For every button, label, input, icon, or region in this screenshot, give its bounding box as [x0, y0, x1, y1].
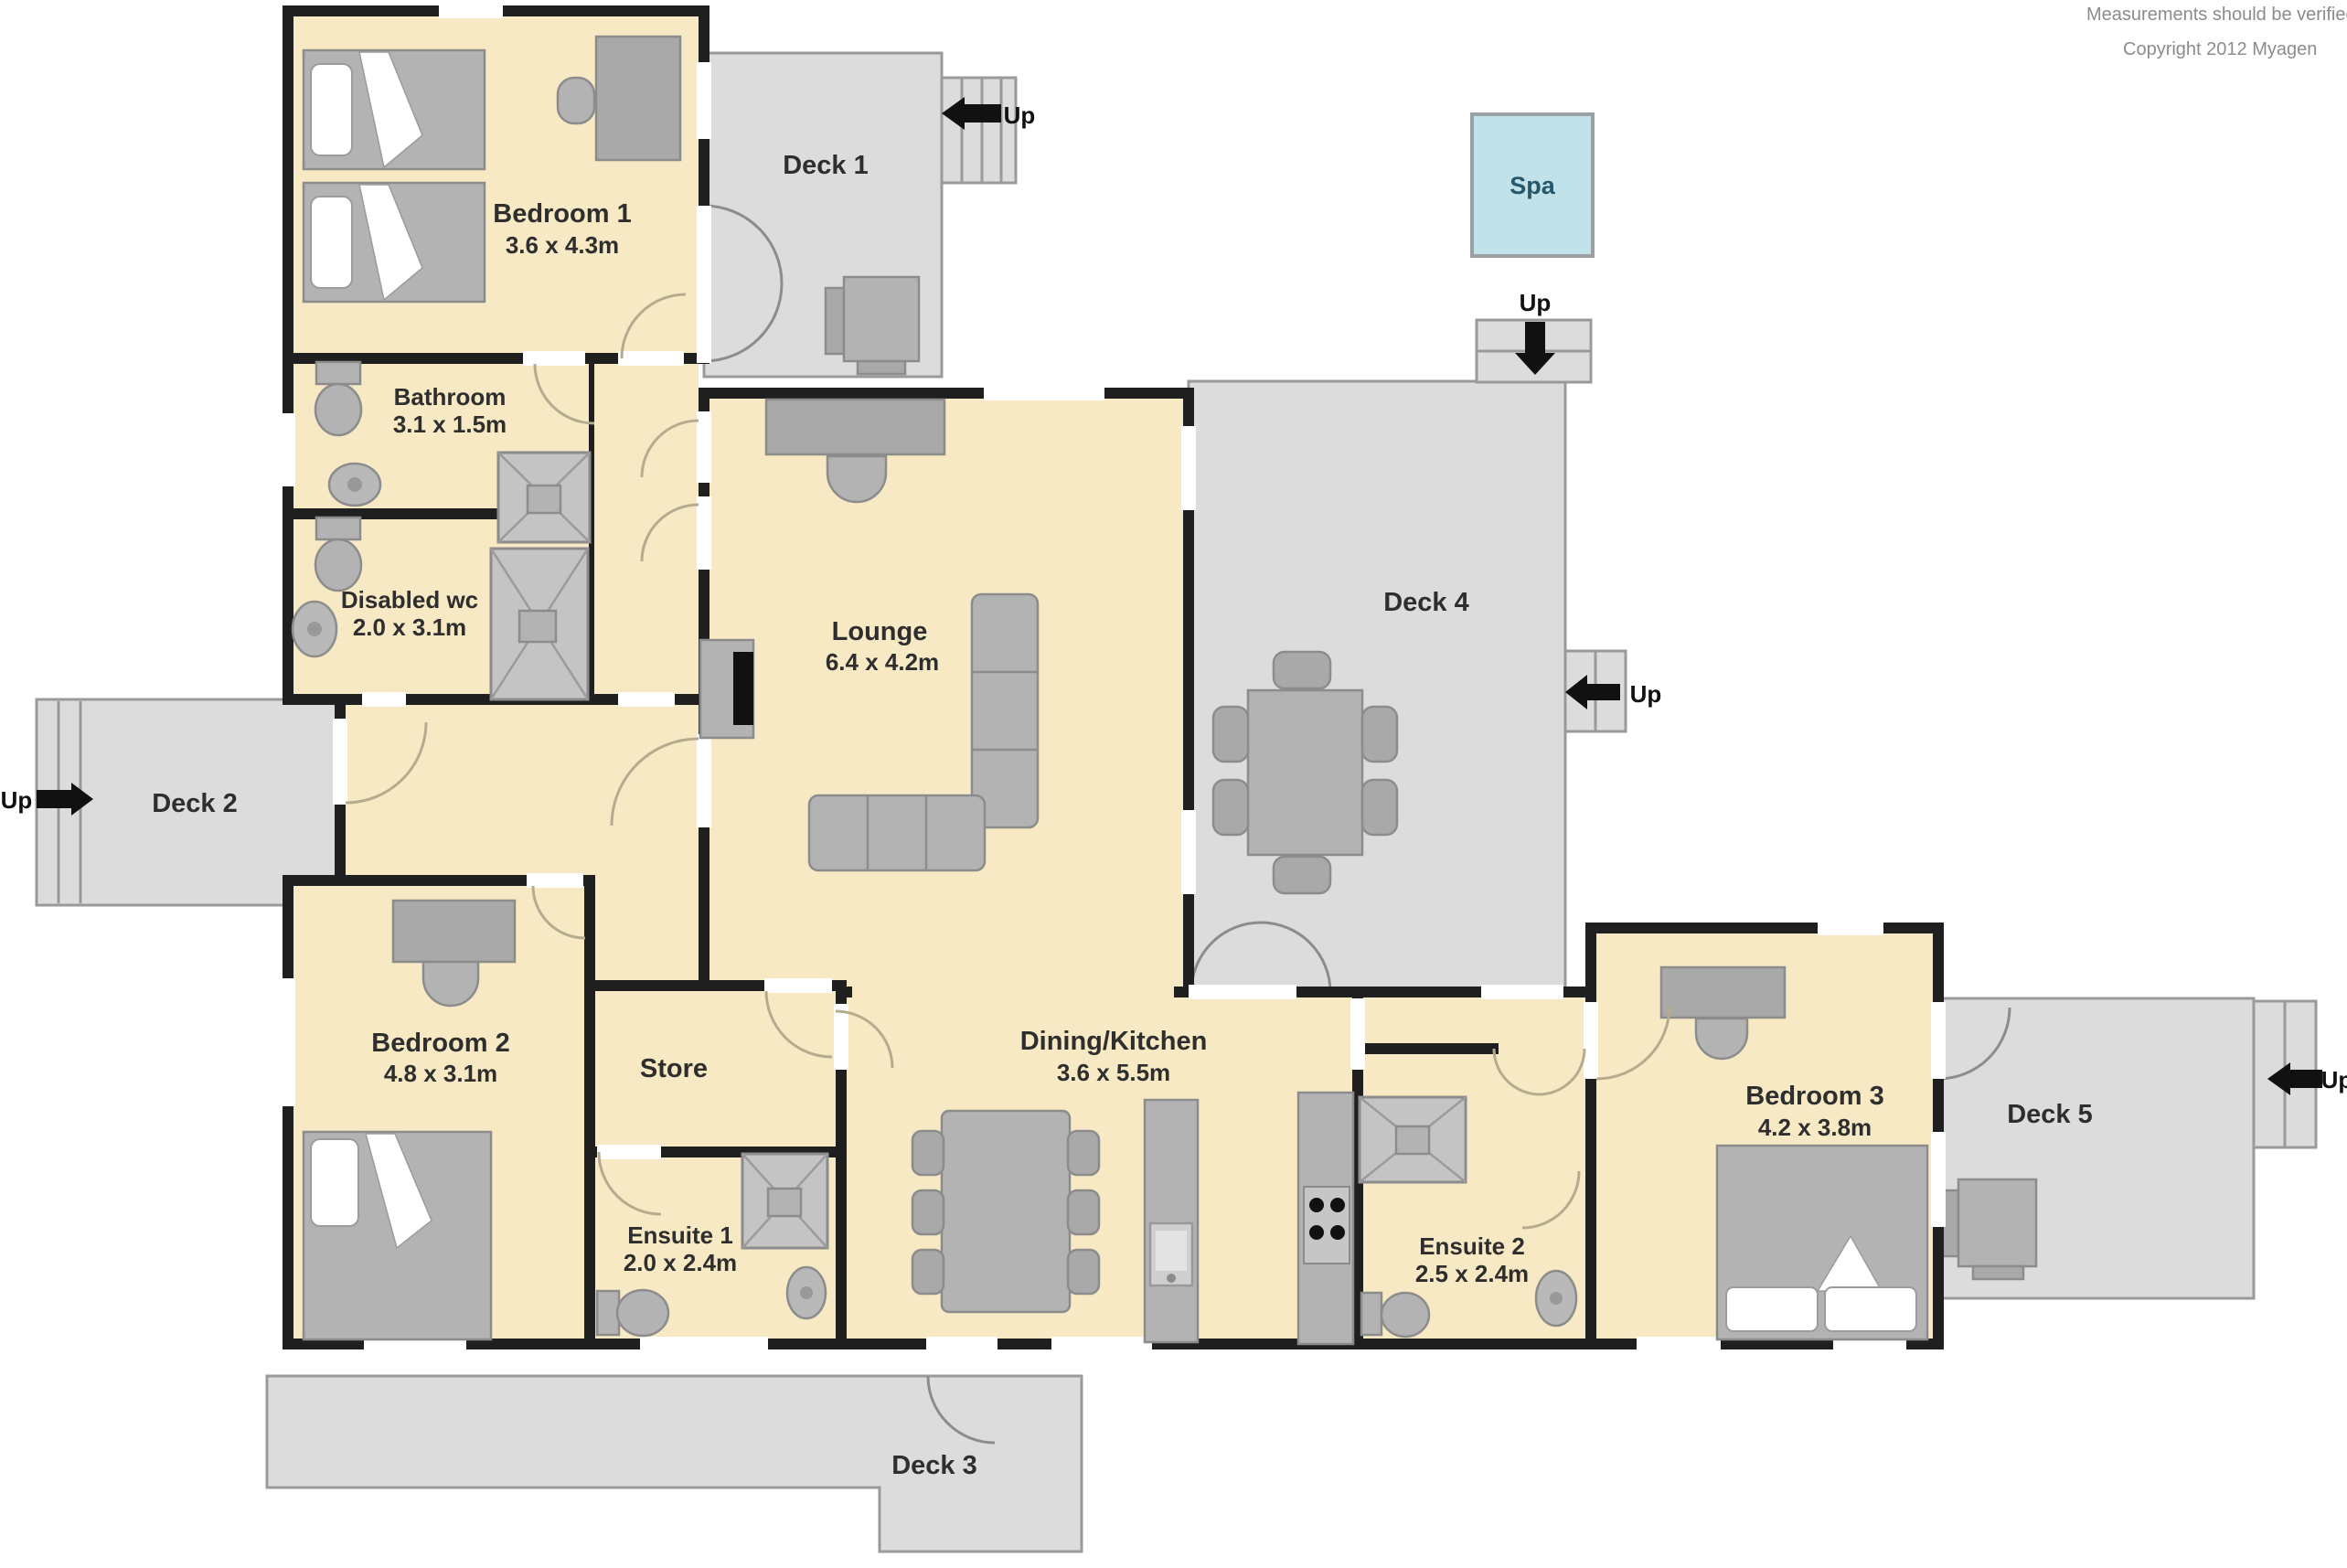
- window-gap: [1181, 810, 1196, 894]
- door-gap: [618, 351, 684, 366]
- spa: Spa: [1472, 114, 1593, 256]
- bed-single-2: [304, 183, 485, 302]
- door-gap: [764, 978, 832, 993]
- label-bedroom2-name: Bedroom 2: [371, 1029, 509, 1058]
- label-bedroom3-name: Bedroom 3: [1745, 1082, 1883, 1111]
- up-label-deck4-right: Up: [1630, 680, 1662, 708]
- ensuite1-toilet: [597, 1290, 668, 1336]
- bed-single-1: [304, 50, 485, 169]
- room-store: [590, 986, 841, 1152]
- shower-1: [498, 453, 590, 542]
- label-ensuite2-dims: 2.5 x 2.4m: [1415, 1260, 1529, 1287]
- note-line2: Copyright 2012 Myagen: [2123, 39, 2317, 59]
- door-gap: [697, 206, 711, 363]
- note-line1: Measurements should be verified b: [2086, 5, 2347, 25]
- bathroom-sink: [329, 464, 380, 506]
- label-store-name: Store: [640, 1054, 708, 1083]
- corridor: [594, 364, 699, 699]
- disabledwc-sink: [293, 602, 336, 656]
- label-bathroom-dims: 3.1 x 1.5m: [393, 411, 507, 438]
- bathroom-toilet: [315, 362, 361, 435]
- floor-plan: Spa: [0, 0, 2347, 1568]
- label-ensuite2-name: Ensuite 2: [1419, 1232, 1525, 1260]
- deck-1: [704, 53, 1016, 377]
- door-gap: [527, 873, 583, 888]
- ensuite1-sink: [787, 1267, 826, 1318]
- plan-notes: Measurements should be verified b Copyri…: [2086, 5, 2347, 59]
- window-gap: [439, 4, 503, 18]
- window-gap: [1931, 1132, 1946, 1227]
- bedroom2-bed: [304, 1132, 491, 1339]
- window-gap: [281, 978, 295, 1106]
- wall-ensuite2-vestibule: [1352, 1043, 1499, 1054]
- bedroom3-bed: [1717, 1146, 1927, 1339]
- label-disabledwc-name: Disabled wc: [341, 586, 478, 613]
- door-gap: [1931, 1002, 1946, 1079]
- shower-2: [491, 549, 588, 699]
- window-gap: [281, 413, 295, 486]
- label-deck1: Deck 1: [783, 151, 869, 180]
- door-gap: [362, 692, 406, 707]
- up-label-deck1: Up: [1004, 101, 1036, 129]
- label-ensuite1-dims: 2.0 x 2.4m: [624, 1249, 737, 1276]
- label-ensuite1-name: Ensuite 1: [627, 1221, 733, 1249]
- door-gap: [1584, 1002, 1598, 1079]
- window-gap: [1181, 426, 1196, 510]
- lounge-sofa-vertical: [972, 594, 1038, 827]
- label-lounge-name: Lounge: [832, 617, 928, 646]
- label-deck5: Deck 5: [2007, 1100, 2093, 1129]
- label-bedroom2-dims: 4.8 x 3.1m: [384, 1060, 497, 1087]
- door-gap: [333, 719, 347, 805]
- door-gap: [1350, 998, 1365, 1070]
- door-gap: [523, 351, 585, 366]
- kitchen-counter: [1298, 1093, 1353, 1344]
- door-gap: [697, 496, 711, 570]
- door-gap: [926, 1337, 997, 1351]
- room-lounge: [704, 393, 1189, 992]
- door-gap: [697, 734, 711, 827]
- label-lounge-dims: 6.4 x 4.2m: [826, 648, 939, 676]
- lounge-sofa-horizontal: [809, 795, 985, 870]
- door-gap: [597, 1145, 661, 1159]
- label-dining-name: Dining/Kitchen: [1020, 1027, 1208, 1056]
- door-gap: [618, 692, 675, 707]
- label-bedroom1-name: Bedroom 1: [493, 199, 631, 229]
- label-bedroom1-dims: 3.6 x 4.3m: [506, 231, 619, 259]
- label-bedroom3-dims: 4.2 x 3.8m: [1758, 1114, 1872, 1141]
- window-gap: [697, 62, 711, 139]
- fireplace: [700, 640, 753, 738]
- up-label-deck2: Up: [1, 786, 33, 814]
- deck-4: [1189, 320, 1626, 992]
- window-gap: [640, 1337, 768, 1351]
- spa-label: Spa: [1510, 172, 1556, 199]
- window-gap: [1051, 1337, 1152, 1351]
- label-deck3: Deck 3: [891, 1451, 977, 1480]
- door-gap: [1481, 985, 1563, 999]
- window-gap: [1818, 921, 1883, 935]
- shower-ensuite2: [1360, 1097, 1466, 1182]
- label-dining-dims: 3.6 x 5.5m: [1057, 1059, 1170, 1086]
- door-gap: [697, 411, 711, 483]
- disabledwc-toilet: [315, 517, 361, 591]
- door-gap: [1189, 985, 1296, 999]
- ensuite2-toilet: [1361, 1293, 1429, 1337]
- shower-ensuite1: [742, 1154, 827, 1248]
- label-deck4: Deck 4: [1383, 588, 1469, 617]
- up-label-deck4-top: Up: [1520, 289, 1552, 316]
- label-disabledwc-dims: 2.0 x 3.1m: [353, 613, 466, 641]
- label-bathroom-name: Bathroom: [394, 383, 507, 411]
- window-gap: [984, 386, 1104, 400]
- door-gap: [834, 1004, 848, 1070]
- kitchen-island: [1145, 1100, 1198, 1342]
- window-gap: [1637, 1337, 1721, 1351]
- up-label-deck5: Up: [2321, 1066, 2347, 1093]
- deck-5: [1936, 998, 2316, 1298]
- label-deck2: Deck 2: [152, 789, 238, 818]
- dining-table: [912, 1111, 1099, 1312]
- ensuite2-sink: [1536, 1271, 1576, 1326]
- floor-plan-page: Spa: [0, 0, 2347, 1568]
